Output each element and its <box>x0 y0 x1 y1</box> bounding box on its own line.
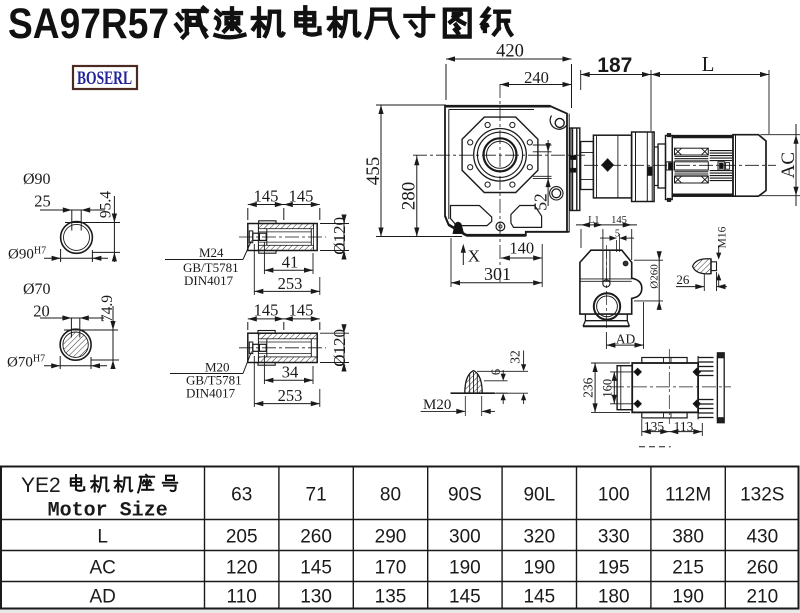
svg-text:M16: M16 <box>717 226 729 248</box>
svg-text:187: 187 <box>597 54 632 77</box>
svg-text:Ø120: Ø120 <box>330 329 349 367</box>
svg-text:L: L <box>97 527 108 548</box>
svg-text:BOSERL: BOSERL <box>77 68 132 89</box>
svg-text:430: 430 <box>746 527 778 548</box>
svg-text:6: 6 <box>489 369 503 375</box>
svg-text:YE2: YE2 <box>21 474 61 497</box>
svg-text:74.9: 74.9 <box>99 295 116 322</box>
svg-text:L1: L1 <box>588 215 599 226</box>
svg-text:AD: AD <box>616 332 636 347</box>
svg-text:135: 135 <box>375 587 407 608</box>
svg-text:210: 210 <box>746 587 778 608</box>
svg-text:145: 145 <box>289 187 314 206</box>
svg-text:145: 145 <box>289 301 314 320</box>
svg-text:AD: AD <box>89 587 115 608</box>
svg-text:135: 135 <box>644 419 665 434</box>
svg-text:112M: 112M <box>665 485 711 506</box>
svg-text:Ø90: Ø90 <box>23 171 51 188</box>
svg-text:180: 180 <box>598 587 630 608</box>
svg-text:170: 170 <box>375 558 407 579</box>
svg-text:132S: 132S <box>740 485 784 506</box>
svg-text:190: 190 <box>672 587 704 608</box>
svg-text:120: 120 <box>226 558 258 579</box>
svg-text:215: 215 <box>672 558 704 579</box>
svg-text:380: 380 <box>672 527 704 548</box>
svg-text:205: 205 <box>226 527 258 548</box>
svg-text:190: 190 <box>523 558 555 579</box>
svg-text:280: 280 <box>399 182 420 211</box>
svg-text:290: 290 <box>375 527 407 548</box>
svg-text:145: 145 <box>254 301 279 320</box>
svg-text:140: 140 <box>509 239 534 258</box>
svg-text:301: 301 <box>484 264 511 284</box>
svg-text:253: 253 <box>278 386 303 405</box>
svg-text:L: L <box>702 52 715 76</box>
svg-text:236: 236 <box>581 377 596 398</box>
svg-text:320: 320 <box>523 527 555 548</box>
svg-text:130: 130 <box>300 587 332 608</box>
svg-text:AC: AC <box>778 152 799 178</box>
svg-text:AC: AC <box>89 558 115 579</box>
svg-text:195: 195 <box>598 558 630 579</box>
svg-text:113: 113 <box>674 419 694 434</box>
svg-text:M24: M24 <box>199 245 224 260</box>
svg-text:95.4: 95.4 <box>98 191 115 218</box>
svg-text:Ø120: Ø120 <box>330 217 349 255</box>
svg-text:Motor Size: Motor Size <box>48 500 168 523</box>
svg-text:SA97R57: SA97R57 <box>8 0 169 48</box>
svg-text:145: 145 <box>254 187 279 206</box>
svg-text:420: 420 <box>496 42 524 62</box>
svg-text:90S: 90S <box>448 485 482 506</box>
svg-text:41: 41 <box>282 253 299 272</box>
svg-text:DIN4017: DIN4017 <box>186 386 236 401</box>
svg-text:25: 25 <box>34 192 51 211</box>
svg-text:145: 145 <box>523 587 555 608</box>
svg-text:100: 100 <box>598 485 630 506</box>
svg-text:63: 63 <box>231 485 252 506</box>
svg-text:90L: 90L <box>523 485 555 506</box>
svg-text:260: 260 <box>746 558 778 579</box>
svg-text:X: X <box>468 247 480 266</box>
svg-text:32: 32 <box>508 350 523 364</box>
svg-text:145: 145 <box>449 587 481 608</box>
svg-text:M20: M20 <box>423 397 451 413</box>
svg-text:190: 190 <box>449 558 481 579</box>
svg-text:145: 145 <box>611 215 627 226</box>
svg-text:34: 34 <box>282 363 299 382</box>
svg-text:110: 110 <box>227 587 257 608</box>
svg-text:300: 300 <box>449 527 481 548</box>
svg-text:455: 455 <box>363 157 384 186</box>
svg-text:Ø70: Ø70 <box>23 281 51 298</box>
svg-text:160: 160 <box>601 379 615 398</box>
svg-text:71: 71 <box>306 485 327 506</box>
svg-text:52: 52 <box>531 193 551 211</box>
svg-text:DIN4017: DIN4017 <box>184 273 234 288</box>
svg-text:240: 240 <box>524 68 549 87</box>
svg-text:20: 20 <box>33 302 50 321</box>
svg-text:80: 80 <box>380 485 401 506</box>
svg-text:5: 5 <box>615 229 620 240</box>
svg-text:145: 145 <box>300 558 332 579</box>
svg-text:26: 26 <box>676 272 690 287</box>
svg-text:330: 330 <box>598 527 630 548</box>
svg-text:260: 260 <box>300 527 332 548</box>
svg-text:253: 253 <box>278 274 303 293</box>
svg-text:Ø260: Ø260 <box>649 264 661 289</box>
